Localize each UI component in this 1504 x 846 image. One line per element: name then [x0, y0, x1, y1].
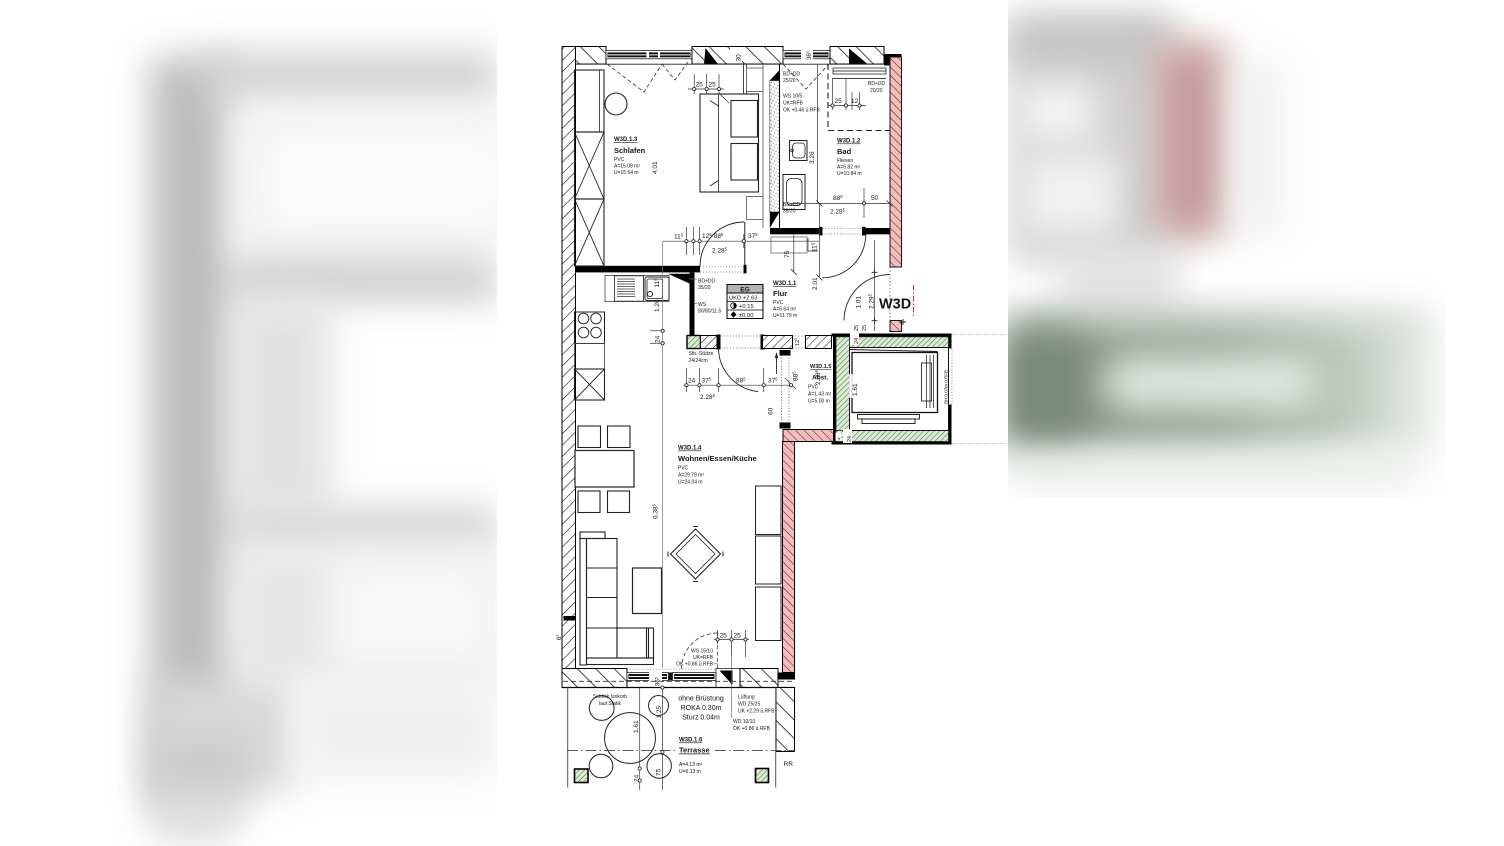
svg-text:1.01: 1.01 [856, 295, 863, 308]
svg-text:laut Statik: laut Statik [599, 701, 621, 707]
svg-text:25: 25 [862, 325, 868, 331]
svg-text:PVC: PVC [614, 157, 625, 163]
svg-text:80/80/11.5: 80/80/11.5 [698, 309, 721, 315]
svg-text:Lüftung: Lüftung [738, 695, 755, 701]
svg-text:A=1.43 m²: A=1.43 m² [808, 392, 832, 398]
svg-text:375: 375 [768, 377, 778, 385]
svg-text:2.01: 2.01 [812, 277, 819, 290]
svg-text:RR: RR [784, 761, 794, 768]
svg-text:Stb.-Stütze: Stb.-Stütze [689, 351, 714, 357]
svg-text:4.01: 4.01 [652, 161, 659, 174]
svg-text:WS 15/10: WS 15/10 [691, 649, 713, 655]
svg-text:Bad: Bad [837, 147, 852, 156]
svg-text:UK +2.29 ü.RFB: UK +2.29 ü.RFB [738, 709, 775, 715]
svg-text:WS 10/5: WS 10/5 [783, 94, 802, 100]
svg-text:A=6.64 m²: A=6.64 m² [773, 307, 797, 313]
svg-text:25: 25 [734, 633, 742, 640]
svg-text:Schöck Isokorb: Schöck Isokorb [593, 694, 627, 700]
svg-text:Sturz 0.04m: Sturz 0.04m [682, 715, 720, 722]
svg-text:U=11.79 m: U=11.79 m [773, 313, 797, 319]
svg-text:25: 25 [709, 82, 717, 89]
svg-text:125·885: 125·885 [702, 232, 724, 240]
svg-text:WD 25/25: WD 25/25 [738, 702, 760, 708]
svg-text:W3D: W3D [879, 297, 911, 313]
svg-text:6.385: 6.385 [652, 503, 660, 519]
svg-text:U=24.04 m: U=24.04 m [678, 480, 703, 486]
svg-text:115: 115 [674, 233, 684, 241]
svg-text:W3D.1.4: W3D.1.4 [678, 446, 702, 452]
svg-text:35/20: 35/20 [783, 209, 796, 215]
svg-text:PVC: PVC [808, 385, 819, 391]
svg-text:EG: EG [740, 287, 749, 294]
svg-text:1.25: 1.25 [656, 705, 663, 718]
svg-text:PVC: PVC [773, 300, 784, 306]
svg-text:2.285: 2.285 [700, 393, 716, 401]
svg-text:BD+DD: BD+DD [698, 279, 715, 285]
svg-text:885: 885 [833, 194, 843, 202]
svg-text:12: 12 [851, 98, 859, 105]
svg-text:2.285: 2.285 [712, 247, 728, 255]
svg-text:25: 25 [720, 633, 728, 640]
svg-text:BD+DD: BD+DD [783, 202, 800, 208]
svg-text:A=15.08 m²: A=15.08 m² [614, 164, 640, 170]
svg-text:U=15.54 m: U=15.54 m [614, 170, 639, 176]
svg-text:25: 25 [835, 98, 843, 105]
svg-text:24: 24 [847, 436, 853, 442]
svg-text:W3D.1.2: W3D.1.2 [837, 139, 861, 145]
svg-text:A=29.79 m²: A=29.79 m² [678, 473, 704, 479]
svg-text:±0.00: ±0.00 [739, 313, 753, 319]
svg-text:U=10.84 m: U=10.84 m [837, 171, 862, 177]
svg-text:25: 25 [854, 325, 860, 331]
svg-text:WS: WS [698, 302, 707, 308]
svg-text:885: 885 [736, 377, 746, 385]
svg-text:25/20: 25/20 [783, 78, 796, 84]
svg-text:1.26: 1.26 [654, 299, 661, 312]
svg-text:25: 25 [696, 82, 704, 89]
svg-text:115: 115 [811, 242, 819, 252]
svg-text:24: 24 [655, 335, 662, 343]
svg-text:Abst.: Abst. [812, 375, 828, 382]
svg-text:75: 75 [656, 768, 663, 776]
svg-text:W3D.1.6: W3D.1.6 [679, 738, 703, 744]
svg-text:+0.15: +0.15 [739, 304, 754, 310]
svg-text:U=6.13 m: U=6.13 m [679, 769, 701, 775]
svg-text:1.61: 1.61 [852, 383, 859, 396]
svg-text:20/20: 20/20 [870, 88, 883, 94]
svg-text:OK +0.86 ü.RFB: OK +0.86 ü.RFB [676, 662, 713, 668]
svg-text:375: 375 [702, 377, 712, 385]
svg-text:60: 60 [768, 407, 775, 415]
svg-text:24: 24 [634, 774, 641, 782]
svg-text:1.61: 1.61 [633, 720, 640, 733]
svg-text:75: 75 [784, 250, 791, 258]
svg-text:125: 125 [794, 338, 801, 346]
svg-text:W3D.1.1: W3D.1.1 [773, 281, 797, 287]
svg-text:ROKA 0.30m: ROKA 0.30m [681, 705, 722, 712]
svg-text:BD+DD: BD+DD [868, 81, 885, 87]
svg-text:BH 0.07m ü.RFB: BH 0.07m ü.RFB [944, 370, 949, 404]
svg-text:OK +0.86 ü.RFB: OK +0.86 ü.RFB [733, 726, 770, 732]
svg-text:35/20: 35/20 [698, 285, 711, 291]
svg-text:UK=RFB: UK=RFB [783, 101, 804, 107]
svg-text:WD 10/10: WD 10/10 [733, 719, 755, 725]
svg-text:Schlafen: Schlafen [614, 146, 646, 155]
svg-text:PVC: PVC [678, 466, 689, 472]
svg-text:24: 24 [854, 338, 860, 344]
svg-text:Flur: Flur [773, 289, 787, 298]
svg-text:50: 50 [871, 195, 879, 202]
svg-text:A=6.82 m²: A=6.82 m² [837, 165, 861, 171]
svg-text:Terrasse: Terrasse [679, 746, 710, 755]
svg-text:UKD +2.63: UKD +2.63 [729, 296, 758, 302]
svg-text:2.285: 2.285 [830, 208, 846, 216]
svg-text:24/24cm: 24/24cm [689, 358, 708, 364]
svg-text:UK=RFB: UK=RFB [693, 655, 714, 661]
svg-text:U=5.00 m: U=5.00 m [808, 399, 830, 405]
svg-text:3.26: 3.26 [809, 151, 816, 164]
svg-text:ohne Brüstung: ohne Brüstung [678, 696, 724, 703]
svg-text:OK +0.46 ü.RFB: OK +0.46 ü.RFB [783, 108, 820, 114]
svg-text:24: 24 [688, 378, 696, 385]
svg-text:W3D.1.5: W3D.1.5 [810, 364, 831, 370]
svg-text:Wohnen/Essen/Küche: Wohnen/Essen/Küche [678, 454, 757, 463]
svg-text:885: 885 [792, 371, 800, 381]
svg-text:375: 375 [748, 232, 758, 240]
svg-text:BD+DD: BD+DD [783, 72, 800, 78]
svg-text:30: 30 [736, 54, 743, 62]
svg-text:W3D.1.3: W3D.1.3 [614, 137, 638, 143]
svg-text:Fliesen: Fliesen [837, 158, 853, 164]
svg-text:A=4.13 m²: A=4.13 m² [679, 762, 703, 768]
